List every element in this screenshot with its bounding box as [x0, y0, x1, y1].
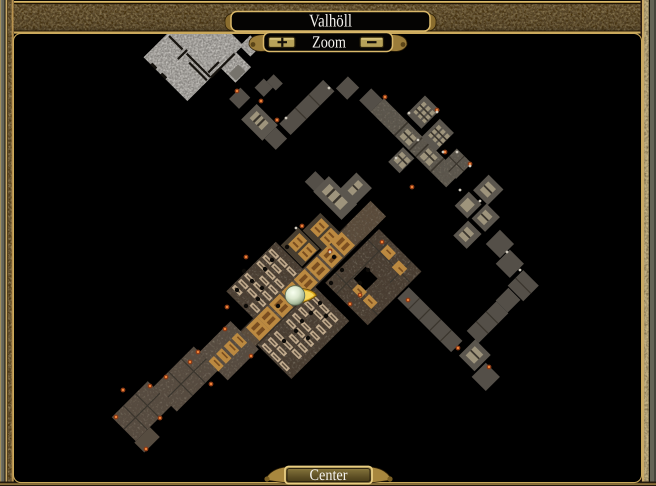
svg-text:Zoom: Zoom: [312, 33, 346, 52]
svg-text:Valhöll: Valhöll: [309, 11, 352, 31]
svg-text:Center: Center: [310, 467, 349, 484]
